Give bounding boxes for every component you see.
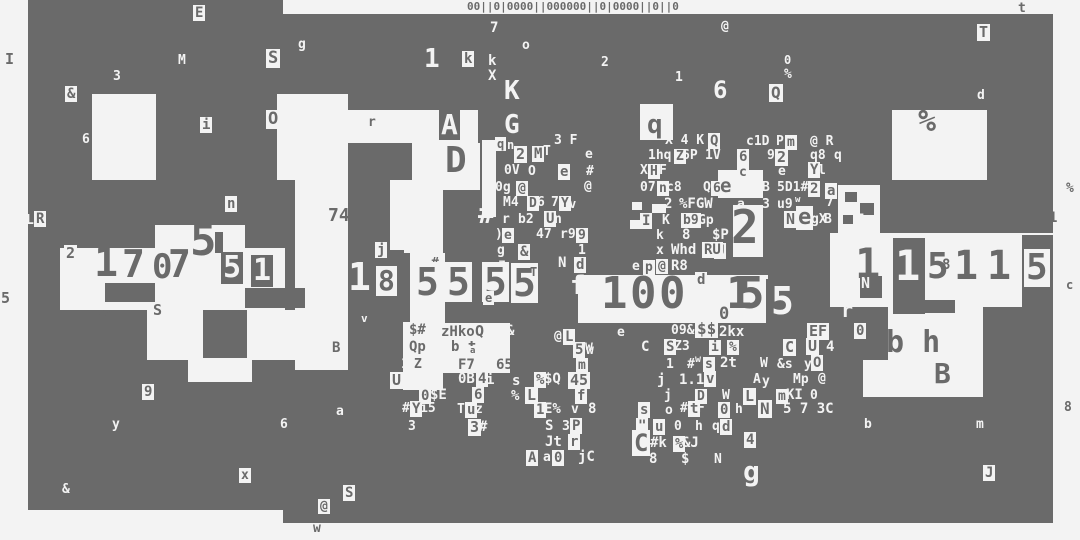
glyph: 7 <box>856 213 864 227</box>
glyph: Gp <box>698 214 714 227</box>
glyph: $E <box>430 388 447 402</box>
glyph: T <box>977 24 990 41</box>
glyph: Mp <box>793 373 809 386</box>
glyph: U <box>806 338 819 355</box>
glyph: s <box>638 402 650 418</box>
glyph: 5 <box>414 262 441 302</box>
glyph: % <box>727 340 739 355</box>
glyph: w <box>795 196 800 205</box>
glyph: 00||0|0000||000000||0|0000||0||0 <box>467 1 679 12</box>
glyph: x <box>656 244 664 257</box>
white-block <box>188 358 252 382</box>
glyph: 1 <box>251 255 273 287</box>
glyph: 0g <box>495 181 511 194</box>
glyph: u <box>653 419 665 435</box>
glyph: g <box>298 38 306 51</box>
glyph: & <box>518 244 530 260</box>
glyph: O <box>811 355 823 371</box>
glyph: v <box>361 313 368 324</box>
glyph: w <box>313 522 321 535</box>
glyph: s <box>703 357 715 372</box>
glyph: K <box>504 78 520 104</box>
glyph: 0V <box>504 164 520 177</box>
glyph: f <box>570 273 586 299</box>
glyph: 1.1 <box>679 373 704 387</box>
glyph: &s <box>777 358 793 371</box>
glyph: & <box>62 483 70 496</box>
glyph: 0B <box>458 372 475 386</box>
glyph: v <box>569 198 576 210</box>
glyph: T <box>543 145 551 158</box>
glyph: $$ <box>695 320 718 338</box>
glyph: m <box>976 418 984 431</box>
glyph: T <box>457 403 465 416</box>
glyph: 5 <box>1 291 10 306</box>
glyph: Qp <box>409 340 426 354</box>
glyph: N <box>758 400 772 418</box>
glyph: $ <box>422 372 430 386</box>
glyph: B <box>330 340 342 356</box>
glyph: @ <box>516 181 528 196</box>
glyph: $Q <box>544 372 561 386</box>
glyph: 2 <box>601 56 609 69</box>
glyph: &J <box>682 436 699 450</box>
glyph: 3 <box>408 420 416 433</box>
glyph: 0 <box>718 402 730 418</box>
glyph: h <box>735 403 743 416</box>
glyph: 07 <box>640 181 656 194</box>
glyph: 5 <box>769 281 796 321</box>
glyph: % <box>1064 181 1076 196</box>
glyph: S <box>153 303 162 318</box>
glyph: e <box>720 177 731 196</box>
glyph: 2 <box>808 181 820 197</box>
glyph: Jt <box>545 435 562 449</box>
glyph: A <box>439 110 460 140</box>
glyph: $P <box>712 228 729 242</box>
glyph: F <box>697 402 705 415</box>
glyph: D <box>445 143 467 179</box>
glyph: 7 <box>551 196 559 209</box>
glyph: 7 <box>826 196 834 209</box>
glyph: 0 <box>719 306 729 323</box>
glyph: # <box>478 200 495 228</box>
glyph: Q <box>703 181 711 194</box>
glyph: 6 <box>280 418 288 431</box>
glyph: P <box>570 418 582 434</box>
glyph: B <box>762 181 770 194</box>
glyph: 6 <box>713 78 727 102</box>
glyph: J <box>983 465 995 481</box>
dark-patch <box>245 288 305 308</box>
glyph: %FGW <box>679 197 713 211</box>
glyph: L <box>743 388 756 405</box>
glyph: P <box>1041 486 1049 499</box>
glyph: o <box>522 39 530 52</box>
glyph: 2 <box>64 245 77 262</box>
glyph: 5 <box>221 252 243 284</box>
glyph: 3 F <box>554 134 577 147</box>
glyph: @ <box>721 20 729 33</box>
glyph: @ <box>318 499 330 514</box>
glyph: % <box>918 107 936 137</box>
glyph: S <box>343 485 355 501</box>
glyph: 6 <box>537 196 545 209</box>
white-block <box>277 94 297 180</box>
glyph: h <box>695 420 703 433</box>
white-patch <box>630 220 640 229</box>
glyph: 09& <box>671 324 694 337</box>
glyph: 4 <box>826 340 834 354</box>
glyph: x <box>239 468 251 483</box>
glyph: jC <box>578 450 595 464</box>
glyph: 4 <box>744 432 756 448</box>
glyph: 2t <box>720 356 737 370</box>
glyph: 3 <box>762 198 770 211</box>
glyph: j <box>664 389 672 402</box>
glyph: 6 <box>737 149 749 165</box>
white-block <box>390 180 443 253</box>
glyph: U <box>390 372 403 389</box>
glyph: B <box>824 213 832 226</box>
glyph: B <box>934 360 951 388</box>
glyph: N <box>558 256 566 270</box>
glyph: 0 <box>854 323 866 339</box>
glyph: j <box>657 373 665 387</box>
glyph: j <box>375 242 387 258</box>
glyph: r <box>568 434 580 450</box>
dark-patch <box>925 300 955 313</box>
glyph: b <box>1024 471 1032 484</box>
glyph: r9 <box>560 228 576 241</box>
glyph: z <box>475 403 483 416</box>
glyph: o <box>665 404 673 417</box>
glyph: c <box>737 165 749 180</box>
glyph: K <box>662 214 670 227</box>
glyph: w <box>695 355 701 365</box>
glyph: 45 <box>568 372 590 389</box>
glyph: e <box>558 164 570 180</box>
glyph: d <box>977 89 985 102</box>
glyph: # <box>586 165 594 178</box>
glyph: 8 <box>682 228 690 242</box>
glyph: 1 <box>1049 211 1057 225</box>
glyph: 2kx <box>719 325 744 339</box>
glyph: 0 <box>552 450 564 466</box>
glyph: k <box>488 54 496 68</box>
glyph: 47 <box>536 228 552 241</box>
glyph: 6P <box>682 149 698 162</box>
glyph: # <box>680 402 688 415</box>
glyph: 74 <box>328 207 350 225</box>
glyph: 1 <box>954 246 978 286</box>
glyph: X <box>488 69 496 83</box>
glyph: M <box>178 54 186 67</box>
glyph: P <box>776 135 784 148</box>
glyph: 1 <box>348 258 371 296</box>
glyph: 0 <box>659 272 686 316</box>
glyph: 1 <box>666 358 674 371</box>
glyph: E <box>193 5 205 21</box>
glyph: Q <box>475 324 484 339</box>
glyph: i5 <box>420 402 436 415</box>
glyph: 9 <box>142 384 154 400</box>
glyph: i <box>709 340 721 355</box>
glyph: # <box>479 420 487 434</box>
glyph: d <box>720 419 732 435</box>
glyph: L <box>26 214 34 227</box>
glyph: 8 <box>942 258 950 272</box>
glyph: r <box>368 116 376 129</box>
dark-patch <box>845 192 857 202</box>
glyph: a <box>543 451 551 464</box>
glyph: n <box>554 213 562 226</box>
white-block <box>92 94 156 180</box>
glyph: c1D <box>746 135 769 148</box>
glyph: F7 <box>458 358 475 372</box>
glyph: i <box>486 373 494 387</box>
glyph: 5 <box>1039 291 1047 305</box>
glyph: 2 <box>514 146 527 163</box>
glyph: zHko <box>441 325 475 339</box>
glyph: 1hq <box>648 149 671 162</box>
glyph: O <box>528 165 536 178</box>
glyph: e <box>502 228 514 243</box>
glyph: r <box>502 213 510 226</box>
glyph: b <box>864 418 872 431</box>
glyph: b2 <box>518 213 534 226</box>
glyph: X 4 K <box>665 134 704 147</box>
glyph: c8 <box>666 181 682 194</box>
glyph: 1 <box>424 46 440 72</box>
glyph: C <box>641 340 649 354</box>
glyph: A <box>753 373 761 386</box>
glyph: q8 <box>810 149 826 162</box>
glyph: W <box>722 389 730 402</box>
glyph: @ R <box>810 135 833 148</box>
glyph: 1 <box>578 244 586 257</box>
glyph: Z3 <box>674 340 690 353</box>
glyph: r <box>841 300 853 320</box>
glyph: q <box>712 420 720 433</box>
glyph: c <box>64 308 71 320</box>
glyph: 1 <box>895 245 920 287</box>
glyph: 9 <box>767 149 775 162</box>
glyph: q <box>495 137 506 151</box>
glyph: 5 <box>738 272 765 316</box>
glyph: v <box>571 403 579 416</box>
glyph: a <box>336 405 344 418</box>
glyph: 3 <box>562 420 570 433</box>
glyph: 1 <box>987 246 1011 286</box>
glyph: 0 <box>674 420 682 433</box>
glyph: R <box>34 211 46 227</box>
glyph: @ <box>584 180 592 193</box>
glyph: W <box>760 357 768 370</box>
glyph: O <box>266 110 280 129</box>
glyph: 6 <box>472 387 484 403</box>
glyph: d <box>695 272 707 288</box>
glyph: 0 <box>630 272 657 316</box>
glyph: e <box>617 326 625 339</box>
glyph: 1 <box>94 243 118 283</box>
glyph: 8 <box>649 452 657 466</box>
glyph: Q <box>769 84 783 102</box>
glyph: s <box>512 374 520 388</box>
glyph: e <box>483 291 494 305</box>
glyph: S <box>545 419 553 433</box>
glyph: M4 <box>503 196 519 209</box>
glyph: k <box>462 51 474 67</box>
glyph: 8 <box>1064 401 1072 414</box>
glyph: k <box>656 229 664 242</box>
glyph: #k <box>650 436 667 450</box>
glitch-canvas: I5t%1c58bPw00||0|0000||000000||0|0000||0… <box>0 0 1080 540</box>
glyph: 2 <box>731 204 759 250</box>
glyph: 8 <box>376 266 397 296</box>
white-block <box>295 94 348 370</box>
glyph: q <box>647 112 663 138</box>
glyph: 7 <box>168 245 191 283</box>
glyph: 5 <box>573 342 585 358</box>
glyph: E% <box>544 402 561 416</box>
glyph: X <box>640 164 648 177</box>
dark-patch <box>843 215 853 224</box>
glyph: N <box>861 276 870 291</box>
glyph: c <box>422 358 430 371</box>
glyph: 1V <box>705 149 721 162</box>
glyph: t <box>1018 2 1026 15</box>
glyph: C <box>632 430 650 456</box>
glyph: C <box>783 339 796 356</box>
glyph: b h <box>886 328 940 358</box>
glyph: $# <box>409 323 426 337</box>
glyph: n <box>225 196 237 212</box>
glyph: y <box>762 375 770 388</box>
glyph: 9 <box>576 228 588 243</box>
glyph: 8 <box>588 402 596 416</box>
glyph: 3 <box>113 70 121 83</box>
glyph: 65 <box>496 358 513 372</box>
glyph: A <box>526 450 538 466</box>
glyph: KI <box>786 388 803 402</box>
glyph: i <box>200 117 212 133</box>
white-block <box>247 310 295 360</box>
glyph: 1 <box>601 272 628 316</box>
glyph: % <box>511 389 519 403</box>
glyph: 5 <box>1024 249 1050 287</box>
glyph: T <box>530 266 537 278</box>
white-block <box>892 110 987 180</box>
glyph: 7 <box>490 21 498 35</box>
glyph: # <box>687 358 695 371</box>
glyph: RU <box>702 242 723 258</box>
glyph: a <box>468 346 477 357</box>
glyph: g <box>743 458 760 486</box>
glyph: % <box>784 68 792 81</box>
white-patch <box>632 202 642 210</box>
glyph: $ <box>681 452 689 466</box>
glyph: & <box>65 86 77 102</box>
glyph: Q <box>708 133 720 149</box>
white-block <box>863 360 983 397</box>
glyph: G <box>504 112 520 138</box>
glyph: 5 <box>445 262 472 302</box>
glyph: w <box>586 344 594 357</box>
glyph: 1 <box>401 358 409 371</box>
glyph: c <box>1064 278 1075 292</box>
glyph: I <box>5 52 14 67</box>
glyph: @ <box>554 330 562 343</box>
glyph: 2 <box>664 197 672 211</box>
glyph: Whd <box>671 243 696 257</box>
glyph: & <box>506 324 514 338</box>
glyph: v <box>704 371 716 387</box>
glyph: 0 <box>784 54 791 66</box>
glyph: # <box>402 402 410 415</box>
glyph: 1 <box>675 71 683 84</box>
glyph: u <box>51 261 59 275</box>
glyph: e <box>778 165 786 178</box>
glyph: 5 <box>190 219 217 263</box>
glyph: e <box>585 148 593 161</box>
glyph: I <box>640 213 652 229</box>
glyph: y <box>112 418 120 431</box>
glyph: @ <box>818 372 826 385</box>
glyph: 6 <box>82 133 90 146</box>
glyph: 7 <box>122 245 145 283</box>
glyph: wy <box>96 307 110 319</box>
glyph: m <box>785 135 797 150</box>
glyph: N <box>714 453 722 466</box>
glyph: g <box>497 244 505 257</box>
glyph: 5D1# <box>777 181 808 194</box>
glyph: F <box>659 164 667 177</box>
glyph: l <box>818 164 826 177</box>
glyph: 5 7 3C <box>783 402 834 416</box>
glyph: S <box>266 49 280 68</box>
glyph: q <box>834 149 842 162</box>
